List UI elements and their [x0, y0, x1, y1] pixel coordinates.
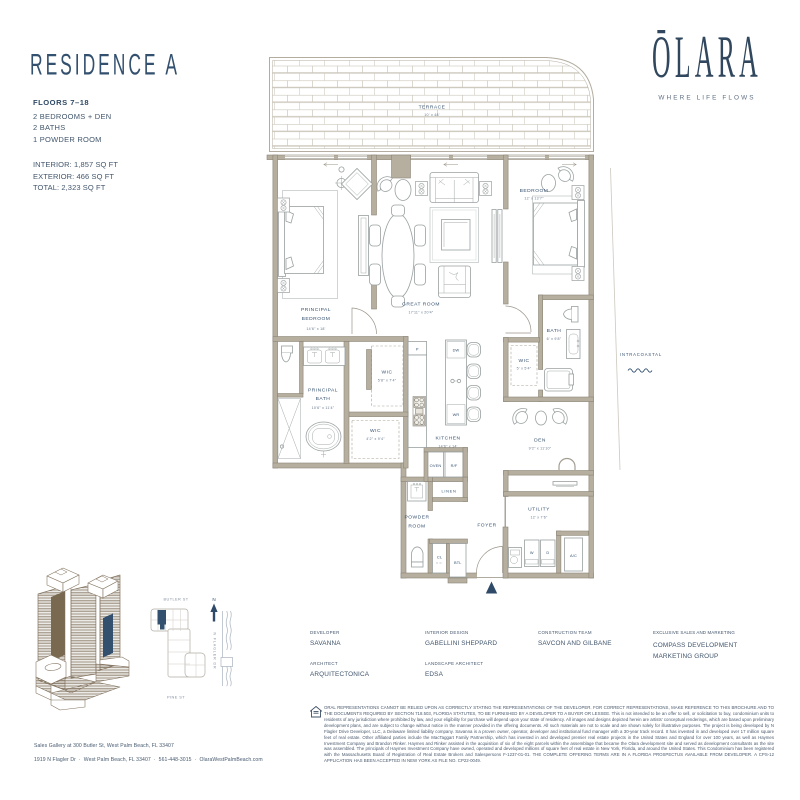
svg-text:CL: CL	[437, 555, 443, 560]
svg-text:D: D	[546, 550, 549, 555]
svg-text:14'6" x 18': 14'6" x 18'	[306, 327, 325, 331]
svg-text:WIC: WIC	[518, 358, 529, 364]
svg-text:PRINCIPAL: PRINCIPAL	[301, 307, 331, 313]
svg-text:INTRACOASTAL: INTRACOASTAL	[620, 352, 662, 357]
svg-text:UTILITY: UTILITY	[528, 507, 550, 513]
svg-text:BTL: BTL	[454, 560, 462, 565]
svg-text:OVEN: OVEN	[430, 463, 442, 468]
svg-text:WIC: WIC	[381, 370, 392, 376]
svg-text:PINE ST: PINE ST	[167, 695, 185, 700]
svg-text:W: W	[530, 550, 534, 555]
svg-text:17'11" x 20'4": 17'11" x 20'4"	[409, 311, 434, 315]
svg-text:BUTLER ST: BUTLER ST	[163, 597, 188, 602]
svg-text:BATH: BATH	[547, 328, 562, 334]
svg-text:14'6" x 14': 14'6" x 14'	[438, 445, 457, 449]
svg-text:WR: WR	[453, 412, 460, 417]
svg-text:DEN: DEN	[534, 438, 546, 444]
svg-text:A/C: A/C	[570, 553, 577, 558]
svg-text:6' x 9'8": 6' x 9'8"	[547, 337, 562, 341]
svg-text:9'2" x 11'10": 9'2" x 11'10"	[529, 447, 552, 451]
svg-text:12' x 7'6": 12' x 7'6"	[531, 516, 548, 520]
svg-text:FOYER: FOYER	[477, 523, 496, 529]
svg-text:4'2" x 9'4": 4'2" x 9'4"	[366, 437, 385, 441]
svg-text:R/F: R/F	[451, 463, 458, 468]
svg-text:BATH: BATH	[316, 396, 331, 402]
svg-text:N: N	[212, 597, 215, 602]
svg-text:10' x 48': 10' x 48'	[424, 113, 439, 117]
svg-text:P: P	[416, 347, 419, 352]
svg-text:KITCHEN: KITCHEN	[436, 436, 461, 442]
svg-text:WIC: WIC	[370, 428, 381, 434]
svg-text:BEDROOM: BEDROOM	[520, 188, 549, 194]
svg-text:5'8" x 7'4": 5'8" x 7'4"	[378, 379, 397, 383]
svg-text:PRINCIPAL: PRINCIPAL	[308, 388, 338, 394]
svg-text:ROOM: ROOM	[408, 524, 425, 530]
svg-text:10'6" x 11'4": 10'6" x 11'4"	[312, 406, 335, 410]
svg-text:TERRACE: TERRACE	[419, 105, 446, 111]
svg-text:BEDROOM: BEDROOM	[302, 316, 331, 322]
svg-text:POWDER: POWDER	[404, 515, 429, 521]
svg-text:5' x 5'4": 5' x 5'4"	[517, 367, 532, 371]
svg-text:N FLAGLER DR: N FLAGLER DR	[213, 633, 217, 670]
svg-text:DW: DW	[453, 348, 460, 353]
svg-text:LINEN: LINEN	[442, 489, 457, 494]
svg-text:12' x 13'7": 12' x 13'7"	[524, 197, 544, 201]
svg-text:GREAT ROOM: GREAT ROOM	[402, 302, 440, 308]
